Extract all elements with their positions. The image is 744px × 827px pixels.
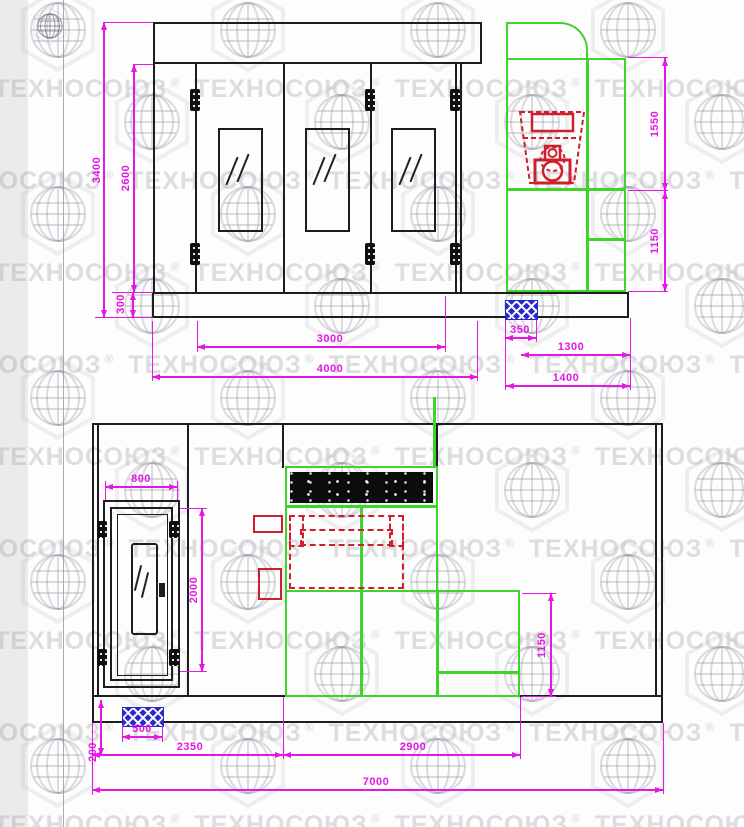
hidden-duct-outline xyxy=(300,529,393,546)
base-bottom-line xyxy=(92,721,663,723)
dim-label-2900: 2900 xyxy=(400,741,426,753)
machine-frame-lower xyxy=(285,590,520,697)
roof-duct-line xyxy=(433,397,436,467)
extension-line xyxy=(177,481,178,500)
booth-roof-line xyxy=(92,423,663,425)
extension-line xyxy=(283,697,284,759)
dim-label-7000: 7000 xyxy=(363,776,389,788)
filter-panel xyxy=(290,472,433,503)
wall-division-line xyxy=(436,425,438,468)
dim-label-500: 500 xyxy=(132,723,152,735)
hidden-duct-outline xyxy=(389,515,404,547)
dim-label-2000: 2000 xyxy=(188,577,200,603)
dimension-line-2900 xyxy=(283,754,520,756)
hidden-duct-outline xyxy=(289,515,304,547)
blueprint-canvas: ТЕХНОСОЮЗ®ТЕХНОСОЮЗ®ТЕХНОСОЮЗ®ТЕХНОСОЮЗ®… xyxy=(0,0,744,827)
hidden-duct-outline xyxy=(289,515,404,589)
booth-left-wall-line xyxy=(92,423,94,697)
duct-connector-box xyxy=(253,515,283,533)
dimension-line-200 xyxy=(100,700,102,756)
base-edge-line xyxy=(661,695,663,723)
dim-label-2350: 2350 xyxy=(177,741,203,753)
dim-label-1150: 1150 xyxy=(536,632,548,658)
machine-divider xyxy=(436,592,439,695)
side-view-drawing: 80020001150500200235029007000 xyxy=(0,0,744,827)
dimension-line-2000 xyxy=(201,508,203,672)
base-edge-line xyxy=(92,695,94,723)
wall-division-line xyxy=(282,425,284,468)
booth-right-wall-line xyxy=(655,423,657,697)
dimension-line-2350 xyxy=(92,754,283,756)
dim-label-800: 800 xyxy=(131,473,151,485)
extension-line xyxy=(663,723,664,794)
dimension-line-7000 xyxy=(92,789,663,791)
dimension-line-500 xyxy=(122,736,162,738)
wall-division-line xyxy=(187,423,189,697)
extension-line xyxy=(162,725,163,742)
hinge-icon xyxy=(97,521,107,538)
dimension-line-800 xyxy=(105,486,177,488)
machine-divider xyxy=(438,671,518,674)
extension-line xyxy=(520,697,521,759)
booth-right-wall-line xyxy=(661,423,663,697)
machine-divider xyxy=(360,592,363,695)
hinge-icon xyxy=(169,649,179,666)
duct-connector-box xyxy=(258,568,282,600)
hinge-icon xyxy=(97,649,107,666)
hinge-icon xyxy=(169,521,179,538)
dimension-line-1150 xyxy=(550,593,552,697)
